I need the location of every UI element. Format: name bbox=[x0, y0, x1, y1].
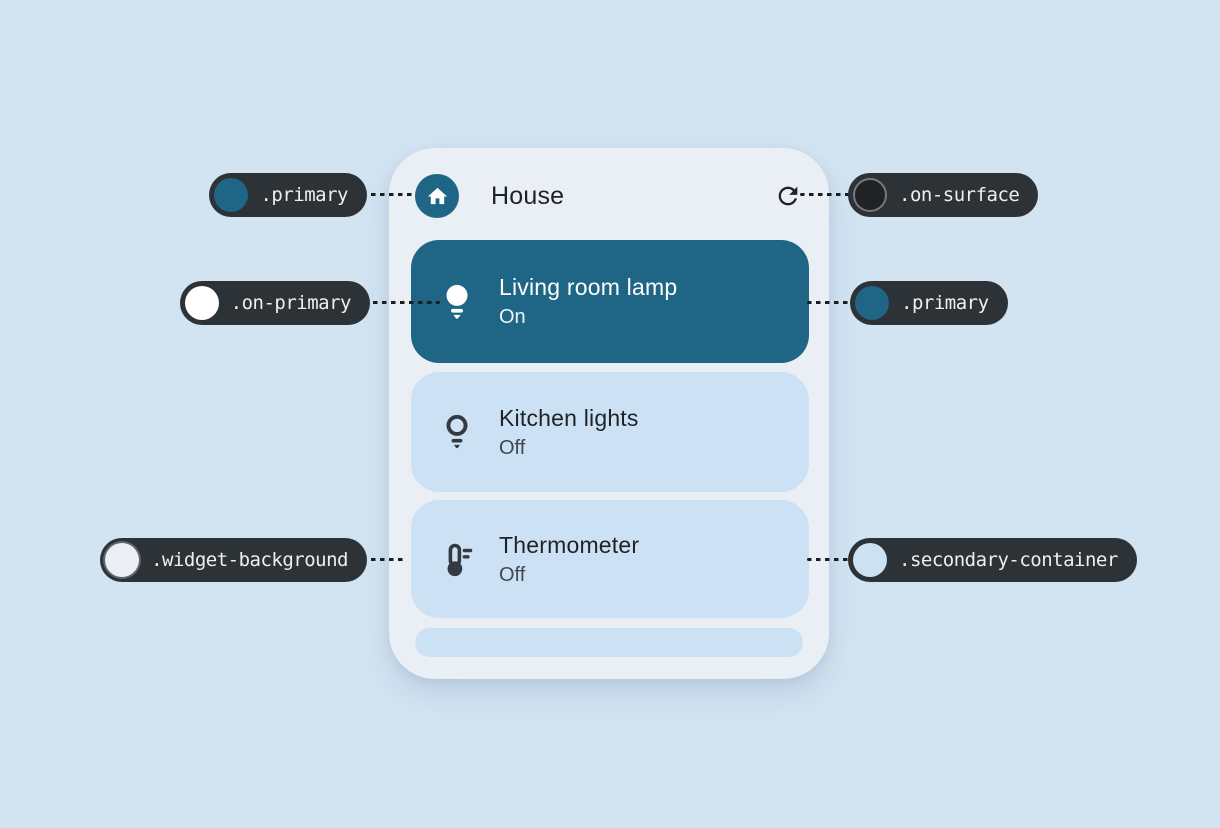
tile-status: Off bbox=[499, 437, 639, 460]
color-swatch-secondary-container bbox=[853, 543, 887, 577]
annotation-label: .primary bbox=[260, 184, 348, 206]
house-app-icon[interactable] bbox=[415, 174, 459, 218]
lightbulb-outline-icon bbox=[435, 412, 479, 452]
color-swatch-primary bbox=[855, 286, 889, 320]
annotation-secondary-container: .secondary-container bbox=[848, 538, 1137, 582]
tile-title: Thermometer bbox=[499, 532, 639, 559]
color-swatch-on-surface bbox=[853, 178, 887, 212]
annotation-label: .primary bbox=[901, 292, 989, 314]
tile-kitchen-lights[interactable]: Kitchen lights Off bbox=[411, 372, 809, 492]
thermometer-icon bbox=[435, 539, 479, 579]
color-swatch-primary bbox=[214, 178, 248, 212]
widget-header: House bbox=[415, 174, 803, 218]
tile-status: On bbox=[499, 306, 677, 329]
partial-tile bbox=[415, 628, 803, 657]
home-widget: House Living room lamp On bbox=[389, 148, 829, 679]
annotation-label: .secondary-container bbox=[899, 549, 1118, 571]
tile-title: Kitchen lights bbox=[499, 405, 639, 432]
leader-line-primary-header bbox=[362, 193, 416, 196]
leader-line-on-surface bbox=[800, 193, 852, 196]
tile-title: Living room lamp bbox=[499, 274, 677, 301]
annotation-label: .on-surface bbox=[899, 184, 1019, 206]
design-spec-canvas: House Living room lamp On bbox=[0, 0, 1220, 828]
annotation-primary-header: .primary bbox=[209, 173, 367, 217]
annotation-widget-background: .widget-background bbox=[100, 538, 367, 582]
leader-line-widget-background bbox=[362, 558, 404, 561]
tile-status: Off bbox=[499, 564, 639, 587]
color-swatch-on-primary bbox=[185, 286, 219, 320]
leader-line-primary-tile bbox=[807, 301, 854, 304]
annotation-on-surface: .on-surface bbox=[848, 173, 1038, 217]
annotation-label: .widget-background bbox=[151, 549, 348, 571]
tile-living-room-lamp[interactable]: Living room lamp On bbox=[411, 240, 809, 363]
lightbulb-filled-icon bbox=[435, 282, 479, 322]
annotation-primary-tile: .primary bbox=[850, 281, 1008, 325]
leader-line-on-primary bbox=[364, 301, 440, 304]
leader-line-secondary-container bbox=[807, 558, 852, 561]
home-icon bbox=[426, 185, 449, 208]
refresh-icon[interactable] bbox=[773, 181, 803, 211]
tile-thermometer[interactable]: Thermometer Off bbox=[411, 500, 809, 618]
widget-title: House bbox=[491, 182, 564, 211]
color-swatch-widget-background bbox=[105, 543, 139, 577]
annotation-label: .on-primary bbox=[231, 292, 351, 314]
annotation-on-primary: .on-primary bbox=[180, 281, 370, 325]
